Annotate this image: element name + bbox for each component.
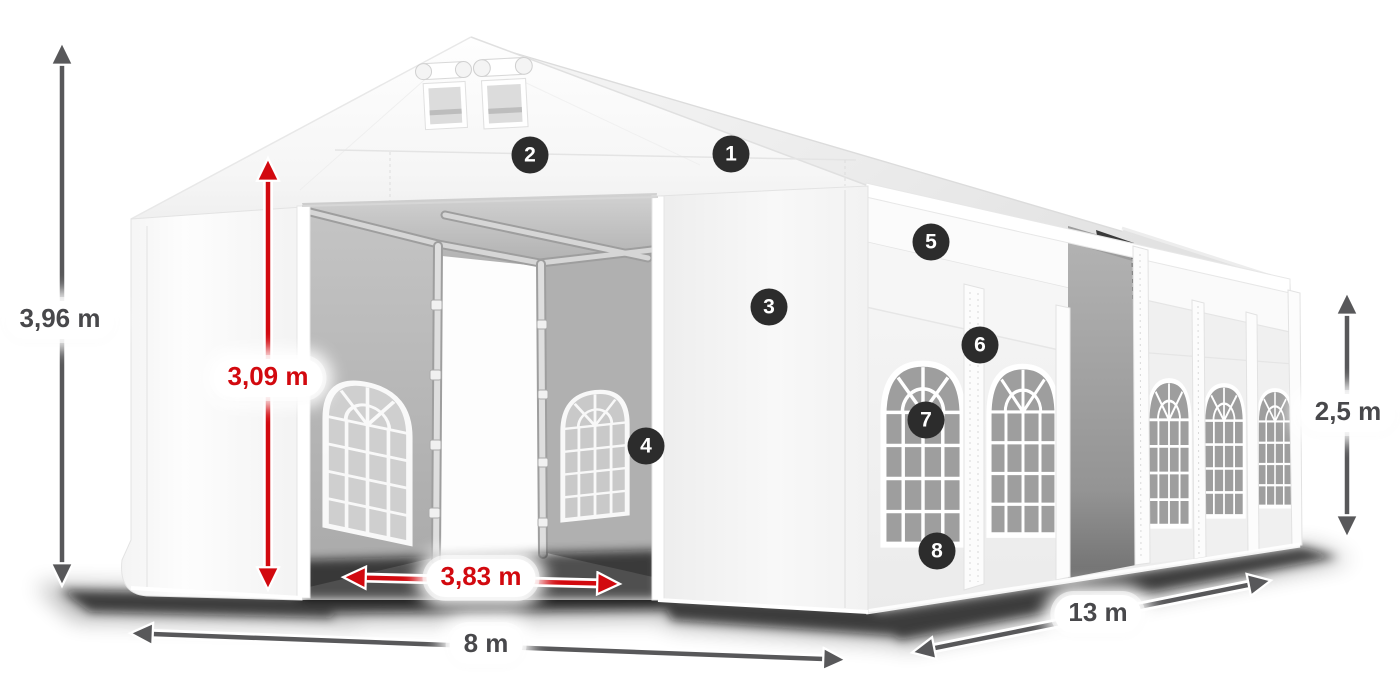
part-marker-3[interactable]: 3: [751, 289, 788, 326]
side-window: [989, 367, 1057, 535]
dimension-label-side-height: 2,5 m: [1301, 394, 1396, 432]
side-window: [883, 364, 962, 545]
dimension-label-entrance-width: 3,83 m: [427, 559, 536, 597]
part-marker-4[interactable]: 4: [628, 428, 665, 465]
dimension-label-entrance-height: 3,09 m: [214, 359, 323, 397]
dimension-label-total-height: 3,96 m: [6, 301, 115, 339]
side-post: [1192, 300, 1206, 559]
side-window: [1204, 385, 1244, 516]
side-window: [1258, 390, 1293, 506]
front-wall-right: [658, 186, 868, 612]
entrance-interior: [302, 193, 658, 600]
entrance-door-right: [538, 250, 653, 577]
side-post: [1056, 305, 1070, 580]
front-wall-left: [122, 207, 302, 600]
tent-dimension-diagram: 3,96 m 3,09 m 3,83 m 8 m 13 m 2,5 m 1 2 …: [0, 0, 1400, 700]
part-marker-8[interactable]: 8: [919, 533, 956, 570]
part-marker-6[interactable]: 6: [962, 327, 999, 364]
part-marker-7[interactable]: 7: [908, 402, 945, 439]
side-window: [1148, 381, 1190, 527]
side-entrance-opening: [1068, 226, 1136, 578]
side-post: [1133, 246, 1150, 565]
side-post: [1246, 312, 1259, 553]
part-marker-5[interactable]: 5: [913, 224, 950, 261]
part-marker-2[interactable]: 2: [512, 137, 549, 174]
dimension-label-length: 13 m: [1054, 595, 1141, 633]
tent-illustration: [0, 0, 1400, 700]
part-marker-1[interactable]: 1: [713, 136, 750, 173]
entrance-door-left: [305, 213, 440, 588]
dimension-label-ground-width: 8 m: [450, 626, 523, 664]
